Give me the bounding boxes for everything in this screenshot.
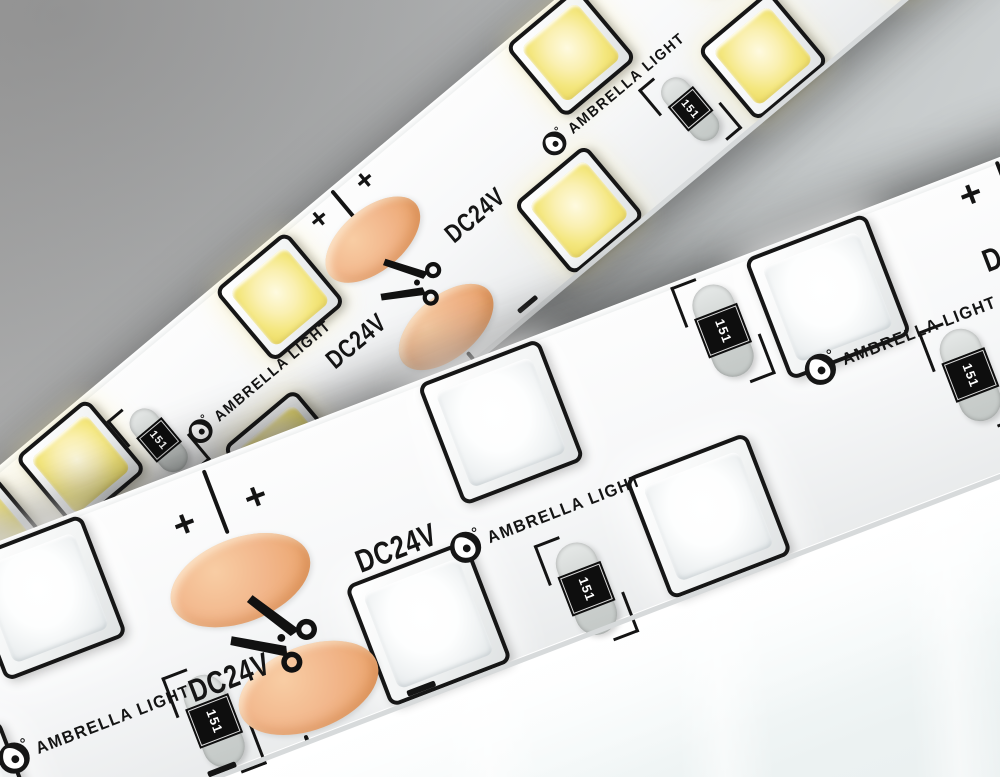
resistor-band: 151 [694,303,752,359]
voltage-label: DC24V [439,181,512,249]
brand-logo-icon [536,125,573,162]
led-window [712,5,814,107]
led-window [0,532,110,664]
led-window [642,450,774,582]
resistor-code-label: 151 [679,97,702,121]
plus-mark: + [239,475,273,518]
resistor: 151 [655,71,726,147]
minus-mark [517,295,539,314]
resistor: 151 [686,278,760,383]
resistor-band: 151 [557,561,615,617]
led-chip [0,514,128,682]
plus-mark: + [954,173,988,216]
resistor-code-label: 151 [147,428,170,452]
voltage-label: DC24V [977,215,1000,280]
brand-text: AMBRELLA LIGHT [33,681,193,759]
led-window [362,557,494,689]
plus-mark: + [168,503,202,546]
plus-mark: + [303,202,336,236]
resistor-band: 151 [941,347,999,403]
resistor-band: 151 [136,417,182,463]
brand-logo-icon [0,736,36,777]
cut-line [202,469,230,534]
resistor-code-label: 151 [203,707,226,735]
cut-line [303,735,309,743]
led-window [528,159,630,261]
resistor-body: 151 [655,71,726,147]
resistor-band: 151 [667,86,713,132]
resistor: 151 [550,536,624,641]
brand-mark: AMBRELLA LIGHT [0,672,204,777]
plus-mark: + [349,164,382,198]
led-window [435,356,567,488]
resistor-code-label: 151 [959,361,982,389]
resistor-body: 151 [686,278,760,383]
cut-line [995,161,1000,218]
product-photo-stage: 151151151AMBRELLA LIGHTAMBRELLA LIGHTDC2… [0,0,1000,777]
resistor-code-label: 151 [575,575,598,603]
resistor-body: 151 [550,536,624,641]
resistor-code-label: 151 [712,316,735,344]
